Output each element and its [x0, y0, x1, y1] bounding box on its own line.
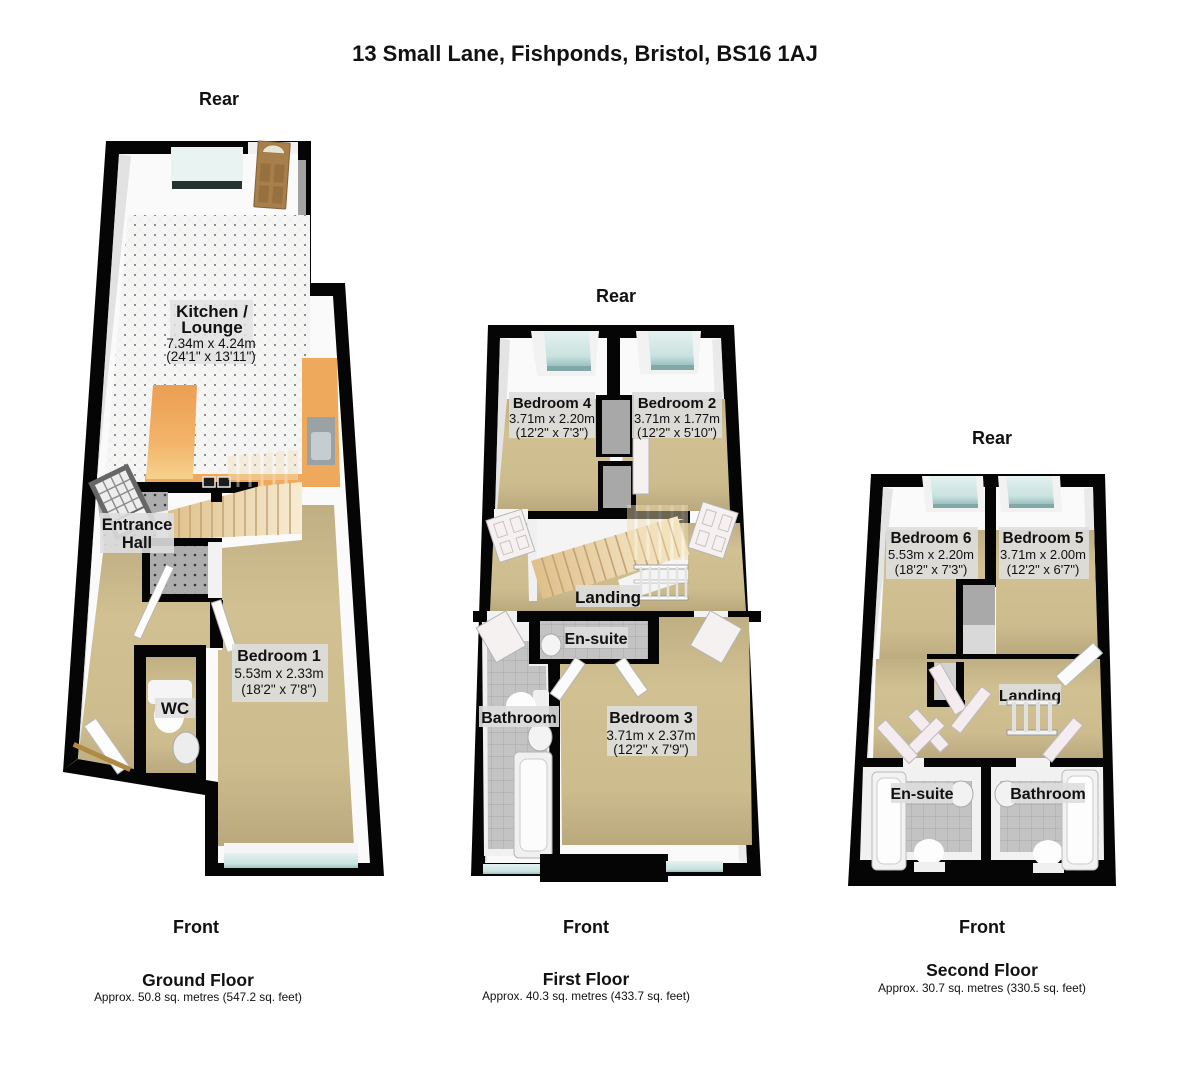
svg-text:Bedroom 4: Bedroom 4: [513, 395, 592, 412]
svg-text:Approx. 40.3 sq. metres (433.: Approx. 40.3 sq. metres (433.7 sq. feet): [482, 989, 690, 1003]
svg-text:(18'2" x 7'3"): (18'2" x 7'3"): [895, 562, 968, 577]
svg-text:Rear: Rear: [596, 286, 636, 306]
svg-text:Front: Front: [173, 917, 219, 937]
svg-text:Bedroom 3: Bedroom 3: [609, 710, 693, 727]
svg-text:(12'2" x 5'10"): (12'2" x 5'10"): [637, 425, 717, 440]
svg-text:WC: WC: [161, 699, 189, 718]
svg-text:Rear: Rear: [972, 428, 1012, 448]
svg-text:Front: Front: [563, 917, 609, 937]
svg-text:Bedroom 6: Bedroom 6: [891, 530, 972, 547]
svg-text:Ground Floor: Ground Floor: [142, 970, 254, 990]
svg-text:3.71m x 2.37m: 3.71m x 2.37m: [606, 728, 695, 743]
svg-text:5.53m x 2.33m: 5.53m x 2.33m: [234, 666, 323, 681]
svg-text:(12'2" x 6'7"): (12'2" x 6'7"): [1007, 562, 1080, 577]
svg-text:Bedroom 1: Bedroom 1: [237, 648, 321, 665]
svg-text:Entrance: Entrance: [102, 516, 173, 534]
svg-text:5.53m x 2.20m: 5.53m x 2.20m: [888, 547, 974, 562]
svg-text:First Floor: First Floor: [543, 969, 630, 989]
svg-text:(24'1" x 13'11"): (24'1" x 13'11"): [166, 349, 256, 364]
svg-text:Bathroom: Bathroom: [1010, 786, 1086, 803]
svg-text:Approx. 50.8 sq. metres (547.: Approx. 50.8 sq. metres (547.2 sq. feet): [94, 990, 302, 1004]
svg-text:(12'2" x 7'9"): (12'2" x 7'9"): [613, 742, 689, 757]
svg-text:Rear: Rear: [199, 89, 239, 109]
svg-text:13 Small Lane, Fishponds, Bris: 13 Small Lane, Fishponds, Bristol, BS16 …: [352, 41, 818, 66]
svg-text:(12'2" x 7'3"): (12'2" x 7'3"): [516, 425, 589, 440]
svg-text:Second Floor: Second Floor: [926, 960, 1038, 980]
svg-text:En-suite: En-suite: [564, 631, 627, 648]
svg-text:3.71m x 2.20m: 3.71m x 2.20m: [509, 411, 595, 426]
svg-text:Bedroom 2: Bedroom 2: [638, 395, 716, 412]
svg-text:3.71m x 2.00m: 3.71m x 2.00m: [1000, 547, 1086, 562]
svg-text:Bedroom 5: Bedroom 5: [1003, 530, 1084, 547]
svg-text:(18'2" x 7'8"): (18'2" x 7'8"): [241, 682, 317, 697]
svg-text:Approx. 30.7 sq. metres (330.: Approx. 30.7 sq. metres (330.5 sq. feet): [878, 981, 1086, 995]
svg-text:Landing: Landing: [575, 588, 641, 607]
svg-text:Front: Front: [959, 917, 1005, 937]
svg-text:Hall: Hall: [122, 534, 152, 552]
svg-text:Lounge: Lounge: [181, 318, 242, 337]
svg-text:En-suite: En-suite: [890, 786, 953, 803]
svg-text:3.71m x 1.77m: 3.71m x 1.77m: [634, 411, 720, 426]
svg-text:Bathroom: Bathroom: [481, 710, 557, 727]
